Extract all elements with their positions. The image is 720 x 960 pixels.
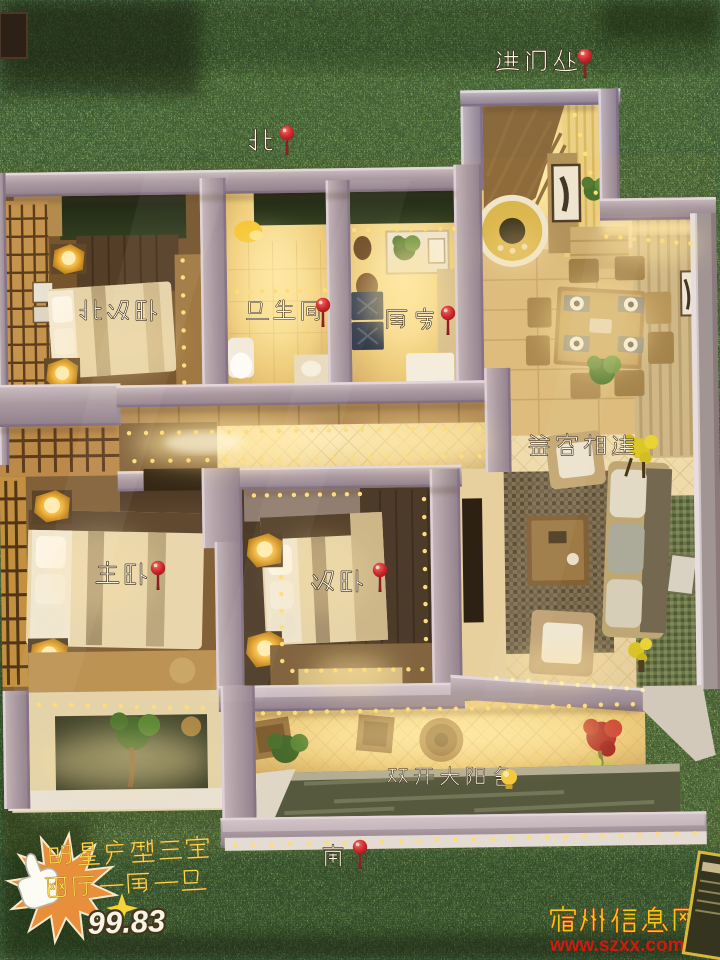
svg-text:99.83: 99.83 bbox=[87, 903, 166, 941]
